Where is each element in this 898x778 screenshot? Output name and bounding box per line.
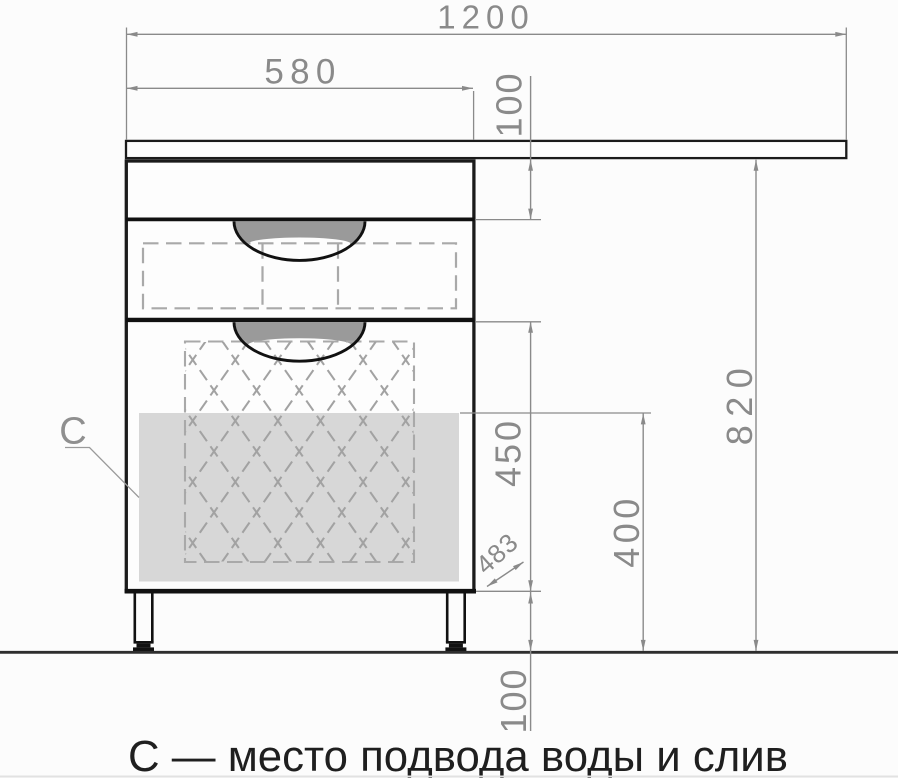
svg-text:100: 100 (489, 71, 530, 137)
svg-text:С — место подвода воды и слив: С — место подвода воды и слив (128, 732, 788, 778)
svg-text:580: 580 (264, 53, 341, 92)
svg-text:1200: 1200 (437, 0, 534, 36)
svg-text:400: 400 (606, 494, 647, 568)
svg-text:450: 450 (488, 418, 529, 487)
svg-text:С: С (59, 411, 86, 453)
svg-text:100: 100 (493, 667, 534, 733)
svg-text:820: 820 (719, 360, 760, 446)
